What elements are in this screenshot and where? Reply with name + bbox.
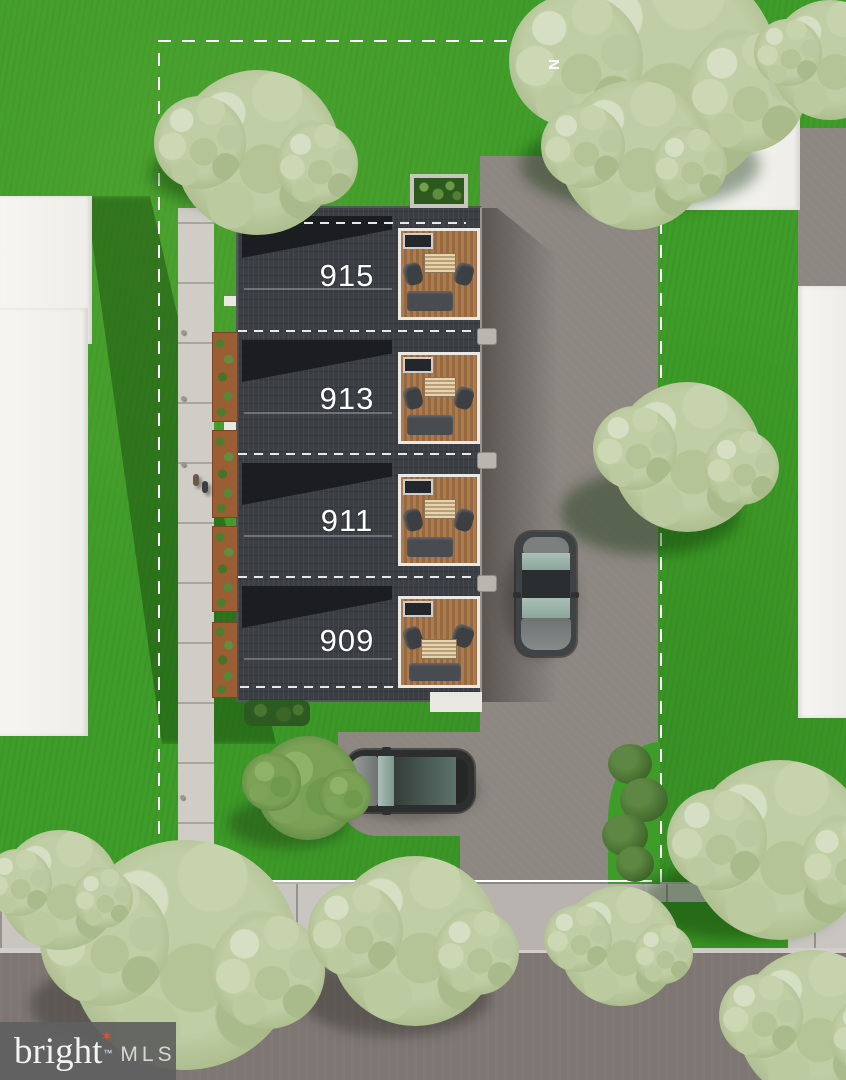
tree: [175, 70, 340, 235]
deck-sofa: [407, 415, 453, 435]
entry-step: [224, 296, 236, 306]
bush: [616, 846, 654, 882]
car-mirror: [513, 592, 521, 598]
deck-chair: [402, 261, 425, 287]
unit-number-911: 911: [297, 503, 397, 539]
deck-table: [424, 377, 456, 397]
skylight: [403, 357, 433, 373]
tree: [612, 382, 762, 532]
hedge: [244, 700, 310, 726]
north-indicator: N: [545, 59, 562, 70]
tree: [256, 736, 360, 840]
path-light: [181, 330, 186, 335]
brand-suffix-text: MLS: [120, 1043, 175, 1067]
unit-divider-line: [238, 453, 480, 455]
path-light: [181, 396, 186, 401]
roof-deck: [398, 474, 480, 566]
unit-number-915: 915: [297, 258, 397, 294]
deck-sofa: [407, 537, 453, 557]
brand-star-icon: ✶: [101, 1028, 113, 1045]
neighbor-parking: [798, 128, 846, 290]
path-light: [180, 795, 185, 800]
car-mirror: [382, 747, 391, 753]
person: [202, 481, 208, 493]
tree: [330, 856, 500, 1026]
car-windshield: [378, 756, 394, 806]
deck-chair: [402, 385, 425, 411]
tree: [560, 80, 710, 230]
deck-chair: [402, 507, 425, 533]
deck-table: [421, 639, 457, 659]
planter-strip: [212, 430, 238, 518]
car-rear-window: [522, 553, 570, 570]
deck-table: [424, 499, 456, 519]
trademark-symbol: ™: [103, 1048, 112, 1058]
brand-logo-text: bright: [14, 1033, 102, 1070]
brightmls-watermark: bright ✶ ™ MLS: [0, 1022, 176, 1080]
car-mirror: [571, 592, 579, 598]
tree: [0, 830, 120, 950]
side-walkway: [178, 208, 214, 884]
neighbor-building-left-lower: [0, 308, 88, 736]
car-trunk: [523, 537, 569, 553]
car-hood: [521, 618, 571, 650]
unit-divider-line: [238, 330, 480, 332]
car-windshield: [522, 598, 570, 618]
utility-box: [477, 575, 497, 592]
roof-deck: [398, 352, 480, 444]
skylight: [403, 601, 433, 617]
planter-box: [410, 174, 468, 208]
planter-strip: [212, 526, 238, 612]
skylight: [403, 233, 433, 249]
car-roof: [394, 757, 456, 805]
utility-box: [477, 328, 497, 345]
deck-sofa: [407, 291, 453, 311]
car-mirror: [382, 809, 391, 815]
rear-stoop: [430, 692, 482, 712]
planter-strip: [212, 622, 238, 698]
unit-number-909: 909: [297, 623, 397, 659]
car-sedan-driveway: [516, 532, 576, 656]
roof-deck: [398, 228, 480, 320]
deck-table: [424, 253, 456, 273]
car-roof: [522, 570, 570, 598]
unit-number-913: 913: [297, 381, 397, 417]
roof-deck: [398, 596, 480, 688]
person: [193, 474, 199, 486]
path-light: [181, 462, 186, 467]
utility-box: [477, 452, 497, 469]
unit-divider-line: [238, 576, 480, 578]
deck-sofa: [409, 663, 461, 681]
tree: [560, 886, 680, 1006]
site-plan-rendering: 915 913 911 909: [0, 0, 846, 1080]
planter-strip: [212, 332, 238, 422]
skylight: [403, 479, 433, 495]
car-rear: [456, 759, 468, 803]
neighbor-building-right: [798, 286, 846, 718]
